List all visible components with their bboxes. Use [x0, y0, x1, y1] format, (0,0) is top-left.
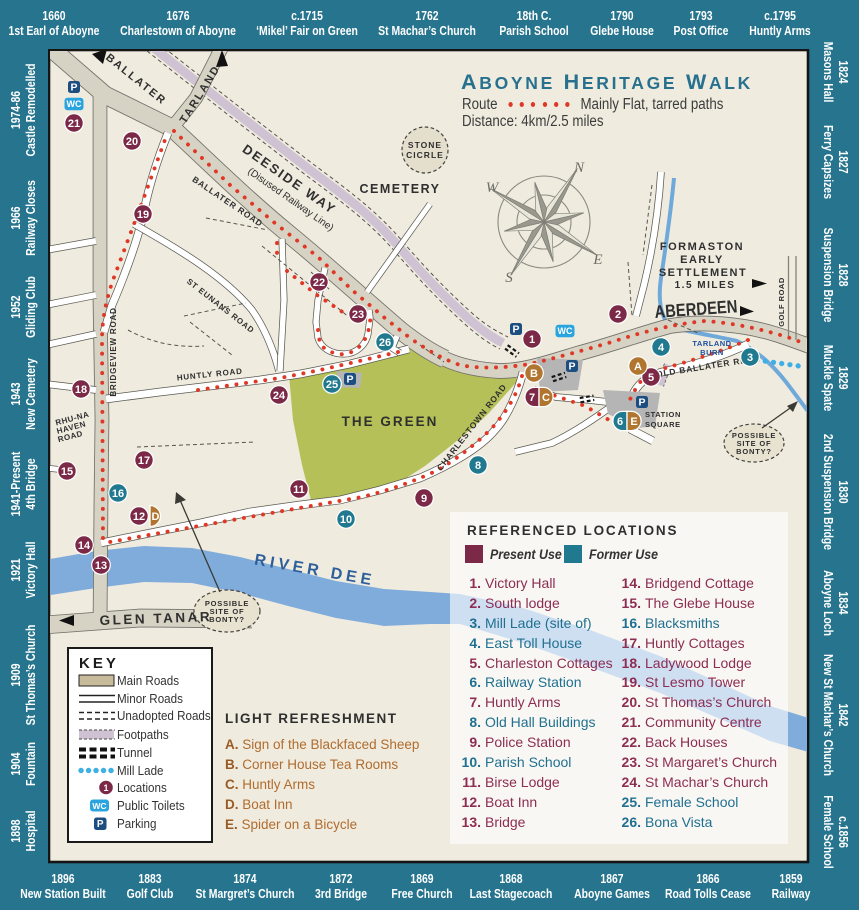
svg-text:17: 17	[138, 455, 150, 467]
svg-text:3: 3	[747, 352, 753, 364]
svg-text:23: 23	[352, 309, 364, 321]
svg-text:4: 4	[658, 342, 665, 354]
svg-text:P: P	[70, 82, 77, 94]
svg-text:P: P	[512, 324, 519, 336]
svg-text:WC: WC	[67, 99, 82, 109]
svg-text:6: 6	[617, 416, 623, 428]
svg-text:N: N	[573, 160, 585, 176]
svg-text:P: P	[346, 374, 353, 386]
svg-text:25: 25	[326, 379, 338, 391]
svg-text:GOLF ROAD: GOLF ROAD	[777, 277, 786, 327]
svg-text:W: W	[486, 180, 500, 196]
svg-text:BURN: BURN	[700, 348, 724, 357]
svg-text:BRIDGEVIEW ROAD: BRIDGEVIEW ROAD	[109, 307, 118, 396]
svg-text:19: 19	[137, 209, 149, 221]
svg-text:S: S	[505, 270, 513, 286]
svg-text:20: 20	[126, 136, 138, 148]
svg-text:18: 18	[75, 384, 87, 396]
svg-text:E: E	[592, 252, 602, 268]
svg-text:P: P	[568, 361, 575, 373]
svg-text:THE GREEN: THE GREEN	[342, 414, 439, 429]
svg-text:7: 7	[529, 392, 535, 404]
svg-text:12: 12	[133, 511, 145, 523]
svg-text:B: B	[530, 368, 538, 380]
svg-text:TARLAND: TARLAND	[692, 339, 731, 348]
svg-text:15: 15	[61, 466, 73, 478]
svg-text:BONTY?: BONTY?	[736, 447, 772, 456]
svg-text:1: 1	[103, 783, 108, 793]
svg-text:11: 11	[293, 484, 305, 496]
svg-text:FORMASTON: FORMASTON	[660, 241, 744, 253]
svg-text:STATION: STATION	[645, 410, 681, 419]
svg-text:24: 24	[273, 390, 286, 402]
svg-text:2: 2	[615, 309, 621, 321]
svg-text:1.5 MILES: 1.5 MILES	[675, 280, 736, 291]
svg-text:P: P	[97, 819, 104, 830]
svg-text:13: 13	[95, 560, 107, 572]
svg-text:C: C	[542, 392, 550, 404]
svg-text:STONE: STONE	[408, 140, 442, 150]
svg-text:22: 22	[313, 277, 325, 289]
svg-text:26: 26	[379, 337, 391, 349]
svg-text:E: E	[630, 416, 637, 428]
svg-text:16: 16	[112, 488, 124, 500]
svg-text:SETTLEMENT: SETTLEMENT	[659, 267, 747, 279]
svg-text:21: 21	[68, 118, 80, 130]
svg-text:8: 8	[475, 460, 481, 472]
svg-text:10: 10	[340, 514, 352, 526]
svg-text:BONTY?: BONTY?	[209, 615, 245, 624]
svg-text:WC: WC	[558, 326, 573, 336]
svg-text:5: 5	[648, 372, 654, 384]
svg-text:1: 1	[529, 334, 535, 346]
svg-text:SQUARE: SQUARE	[645, 420, 681, 429]
svg-text:14: 14	[78, 540, 91, 552]
svg-text:CEMETERY: CEMETERY	[360, 182, 441, 196]
svg-text:CICRLE: CICRLE	[406, 150, 444, 160]
svg-text:P: P	[638, 397, 645, 409]
svg-text:9: 9	[421, 493, 427, 505]
svg-text:A: A	[634, 361, 642, 373]
svg-text:WC: WC	[92, 801, 106, 811]
svg-text:D: D	[152, 511, 160, 523]
svg-text:EARLY: EARLY	[680, 254, 724, 266]
